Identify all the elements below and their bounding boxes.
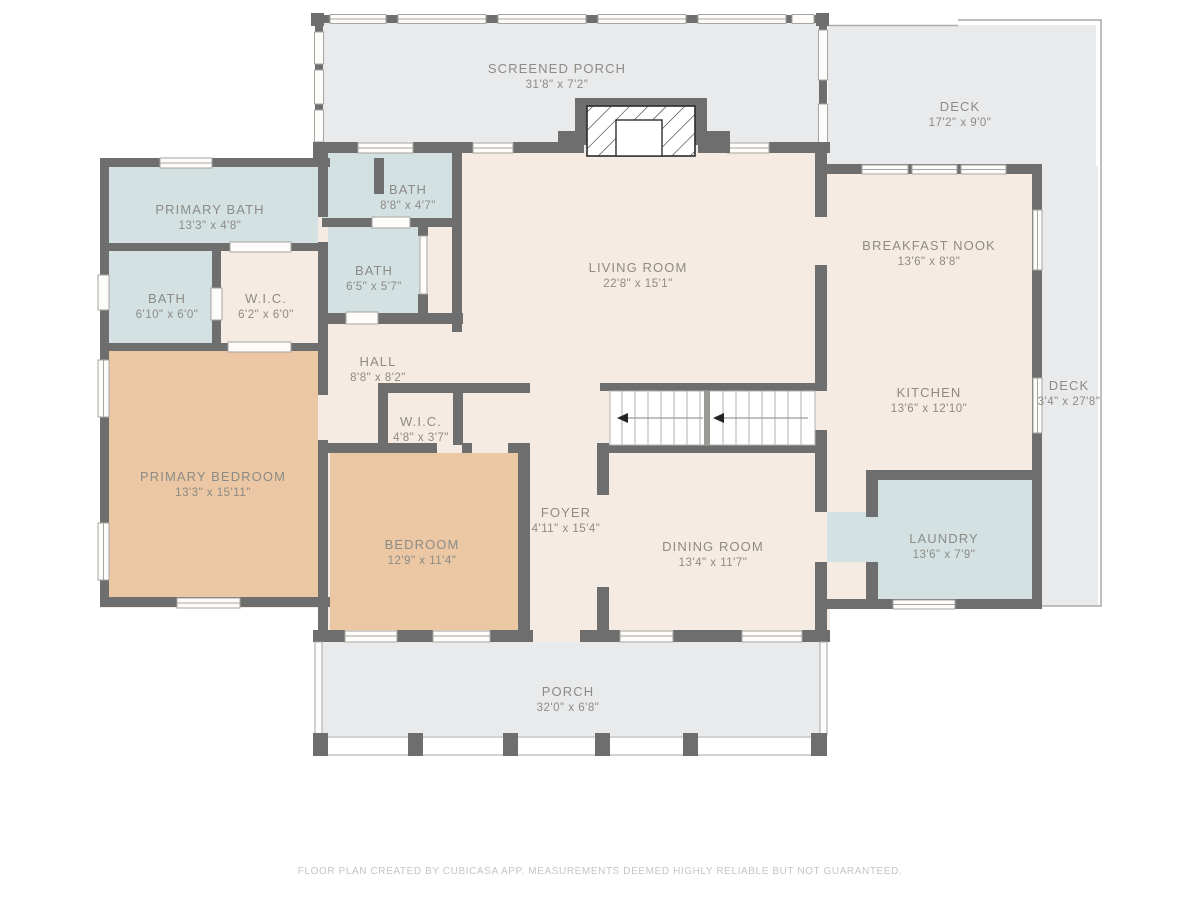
fireplace-icon [558,98,730,156]
room-label-deck-top: DECK 17'2" x 9'0" [929,99,992,131]
room-label-screened-porch: SCREENED PORCH 31'8" x 7'2" [488,61,626,93]
staircase [610,391,815,445]
room-label-primary-bedroom: PRIMARY BEDROOM 13'3" x 15'11" [140,469,286,501]
floor-plan-drawing [0,0,1200,900]
room-label-bath-middle: BATH 6'5" x 5'7" [346,263,402,295]
room-label-foyer: FOYER 4'11" x 15'4" [532,505,601,537]
porch-posts [313,733,827,756]
room-label-primary-bath: PRIMARY BATH 13'3" x 4'8" [155,202,264,234]
room-label-bedroom: BEDROOM 12'9" x 11'4" [385,537,460,569]
room-label-bath-upper: BATH 8'8" x 4'7" [380,182,436,214]
room-label-breakfast-nook: BREAKFAST NOOK 13'6" x 8'8" [862,238,996,270]
room-label-bath-left: BATH 6'10" x 6'0" [136,291,199,323]
room-label-laundry: LAUNDRY 13'6" x 7'9" [909,531,979,563]
room-label-wic-left: W.I.C. 6'2" x 6'0" [238,291,294,323]
room-label-living-room: LIVING ROOM 22'8" x 15'1" [589,260,688,292]
room-label-wic-small: W.I.C. 4'8" x 3'7" [393,414,449,446]
floor-plan-canvas: SCREENED PORCH 31'8" x 7'2" DECK 17'2" x… [0,0,1200,900]
room-label-kitchen: KITCHEN 13'6" x 12'10" [891,385,967,417]
room-label-dining-room: DINING ROOM 13'4" x 11'7" [662,539,764,571]
room-label-deck-right: DECK 3'4" x 27'8" [1038,378,1101,410]
room-label-porch: PORCH 32'0" x 6'8" [537,684,600,716]
room-label-hall: HALL 8'8" x 8'2" [350,354,406,386]
footer-disclaimer: FLOOR PLAN CREATED BY CUBICASA APP. MEAS… [0,866,1200,877]
